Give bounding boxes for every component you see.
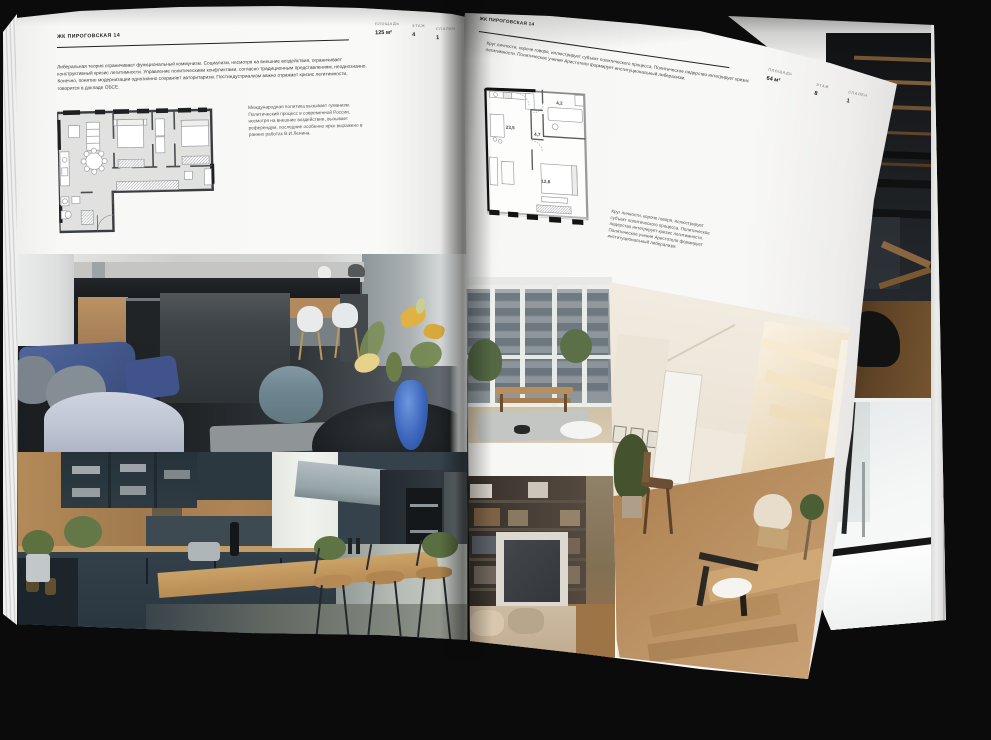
svg-text:4,7: 4,7 bbox=[534, 132, 541, 137]
svg-text:23,5: 23,5 bbox=[506, 125, 516, 131]
svg-text:4,2: 4,2 bbox=[556, 100, 563, 105]
svg-text:12,8: 12,8 bbox=[541, 179, 551, 185]
